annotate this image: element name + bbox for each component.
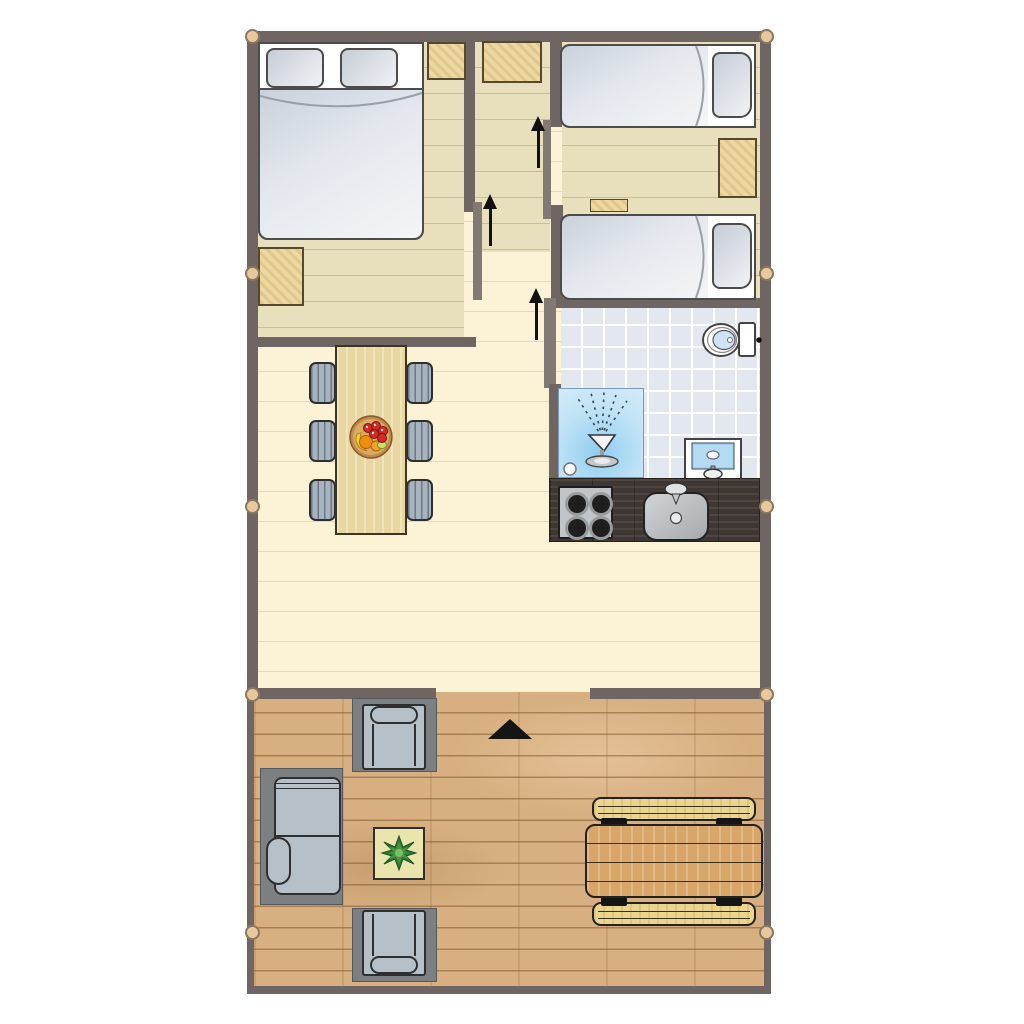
pillow-left <box>266 48 324 88</box>
tent-peg <box>245 499 260 514</box>
tent-peg <box>759 925 774 940</box>
master-door-panel <box>473 202 482 300</box>
dining-chair <box>406 362 433 404</box>
fruit-bowl <box>349 415 393 459</box>
shower <box>558 388 644 478</box>
bench-plank-line <box>598 918 750 919</box>
duvet-fold-line <box>678 214 708 300</box>
double-bed <box>258 42 424 240</box>
bench-plank-line <box>598 806 750 807</box>
arrow-shaft <box>489 209 492 246</box>
table-plank-line <box>587 843 761 844</box>
bench-plank-line <box>598 813 750 814</box>
armchair-backrest <box>370 956 418 974</box>
bathroom-door-panel <box>544 298 556 388</box>
bench-plank-line <box>598 911 750 912</box>
tent-peg <box>245 29 260 44</box>
plant-icon <box>375 829 423 878</box>
armrest-line <box>372 724 374 766</box>
wall-deck-right-segment <box>590 688 771 699</box>
burner-icon <box>565 492 589 516</box>
tent-peg <box>245 925 260 940</box>
single-bed-1 <box>560 44 756 128</box>
deck-rail-left <box>247 692 254 993</box>
picnic-connector <box>601 897 627 906</box>
picnic-table <box>585 824 763 898</box>
table-plank-line <box>587 862 761 863</box>
washbasin <box>684 438 742 480</box>
pillow-right <box>340 48 398 88</box>
picnic-connector <box>716 897 742 906</box>
dining-chair <box>406 420 433 462</box>
single-bed-2 <box>560 214 756 300</box>
table-plank-line <box>587 881 761 882</box>
dining-chair <box>309 362 336 404</box>
tent-peg <box>759 266 774 281</box>
dining-chair <box>309 479 336 521</box>
arrow-shaft <box>537 131 540 168</box>
sofa-backrest-line <box>276 783 339 789</box>
armchair-top <box>362 704 426 770</box>
entry-arrow-master-room <box>483 194 497 246</box>
tent-peg <box>759 499 774 514</box>
single-bed-2-pillow <box>712 223 752 289</box>
armrest-line <box>414 914 416 956</box>
twin-room-dresser <box>718 138 757 198</box>
arrow-head-icon <box>529 288 543 303</box>
master-cabinet <box>427 42 466 80</box>
sofa <box>274 777 341 895</box>
armrest-line <box>414 724 416 766</box>
arrow-shaft <box>535 303 538 340</box>
entry-arrow-twin-room <box>531 116 545 168</box>
armrest-line <box>372 914 374 956</box>
twin-room-shelf <box>590 199 628 212</box>
dining-chair <box>309 420 336 462</box>
master-nightstand <box>258 247 304 306</box>
plant-table <box>373 827 425 880</box>
tent-peg <box>245 266 260 281</box>
tent-peg <box>759 29 774 44</box>
duvet-fold-line <box>258 88 424 118</box>
sofa-cushion-divider <box>276 835 339 837</box>
tent-peg <box>245 687 260 702</box>
entrance-triangle-icon <box>488 719 532 739</box>
duvet-fold-line <box>678 44 708 128</box>
entry-arrow-bathroom <box>529 288 543 340</box>
arrow-head-icon <box>531 116 545 131</box>
toilet <box>702 320 762 360</box>
dining-chair <box>406 479 433 521</box>
kitchen-sink <box>641 481 711 543</box>
floor-plan-canvas <box>0 0 1024 1024</box>
burner-icon <box>589 492 613 516</box>
burner-icon <box>589 516 613 540</box>
shower-spray-icon <box>559 389 645 479</box>
hallway-cabinet <box>482 41 542 83</box>
deck-rail-right <box>764 692 771 993</box>
sofa-armrest-pillow <box>266 837 291 885</box>
deck-rail-bottom <box>247 986 771 994</box>
single-bed-1-pillow <box>712 52 752 118</box>
wall-left <box>247 31 258 699</box>
tent-peg <box>759 687 774 702</box>
armchair-backrest <box>370 706 418 724</box>
armchair-bottom <box>362 910 426 976</box>
burner-icon <box>565 516 589 540</box>
wall-right <box>760 31 771 699</box>
stove <box>558 486 613 539</box>
arrow-head-icon <box>483 194 497 209</box>
